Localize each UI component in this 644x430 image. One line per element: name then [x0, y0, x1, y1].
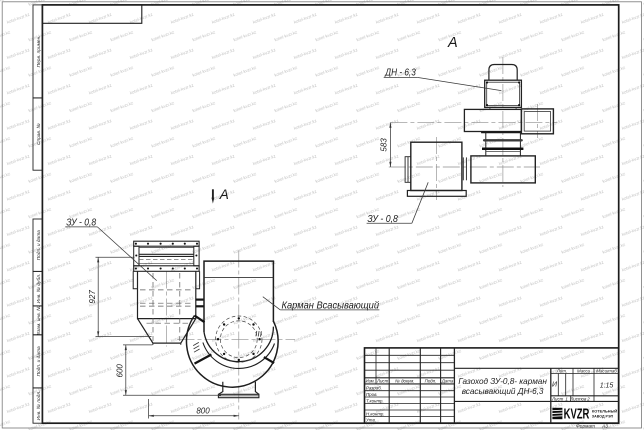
- svg-text:2: 2: [586, 396, 590, 401]
- svg-text:Перв. примен.: Перв. примен.: [36, 35, 42, 67]
- svg-text:ДН - 6,3: ДН - 6,3: [385, 67, 416, 79]
- svg-text:Газоход ЗУ-0,8- карман: Газоход ЗУ-0,8- карман: [458, 377, 547, 386]
- svg-text:Т.контр.: Т.контр.: [366, 398, 384, 403]
- svg-text:Инв. № дубл.: Инв. № дубл.: [36, 274, 42, 304]
- svg-text:Лит.: Лит.: [556, 368, 567, 373]
- svg-text:всасывающий ДН-6,3: всасывающий ДН-6,3: [462, 387, 544, 396]
- svg-text:Формат: Формат: [576, 424, 595, 430]
- svg-text:Подп. и дата: Подп. и дата: [36, 346, 42, 376]
- svg-text:KVZR: KVZR: [564, 406, 590, 423]
- svg-text:А: А: [219, 187, 229, 202]
- svg-text:583: 583: [380, 138, 389, 152]
- svg-text:Взам. инв. №: Взам. инв. №: [36, 306, 42, 336]
- svg-text:Инв. № подл.: Инв. № подл.: [36, 391, 42, 421]
- svg-text:ЗАВОД РЭП: ЗАВОД РЭП: [592, 414, 613, 419]
- svg-text:Пров.: Пров.: [366, 392, 378, 397]
- svg-text:Масса: Масса: [577, 368, 591, 373]
- svg-text:Листов: Листов: [569, 396, 587, 401]
- svg-text:Масштаб: Масштаб: [596, 368, 617, 373]
- svg-text:Справ. №: Справ. №: [36, 123, 42, 145]
- svg-text:Разраб.: Разраб.: [366, 385, 382, 390]
- svg-text:Утв.: Утв.: [366, 418, 376, 423]
- svg-text:А3: А3: [601, 424, 608, 430]
- svg-text:№ докум.: № докум.: [395, 378, 414, 383]
- svg-text:Лист: Лист: [376, 378, 389, 383]
- svg-text:927: 927: [88, 290, 97, 304]
- svg-text:600: 600: [115, 364, 124, 378]
- svg-text:Изм.: Изм.: [366, 378, 375, 383]
- svg-text:А: А: [447, 35, 458, 51]
- svg-text:Н.контр.: Н.контр.: [366, 411, 385, 416]
- svg-text:1:15: 1:15: [600, 383, 614, 390]
- svg-text:Дата: Дата: [441, 378, 454, 383]
- svg-text:Лист: Лист: [551, 396, 564, 401]
- svg-text:Подп.: Подп.: [425, 378, 437, 383]
- svg-text:Подп. и дата: Подп. и дата: [36, 230, 42, 260]
- svg-text:800: 800: [196, 407, 210, 416]
